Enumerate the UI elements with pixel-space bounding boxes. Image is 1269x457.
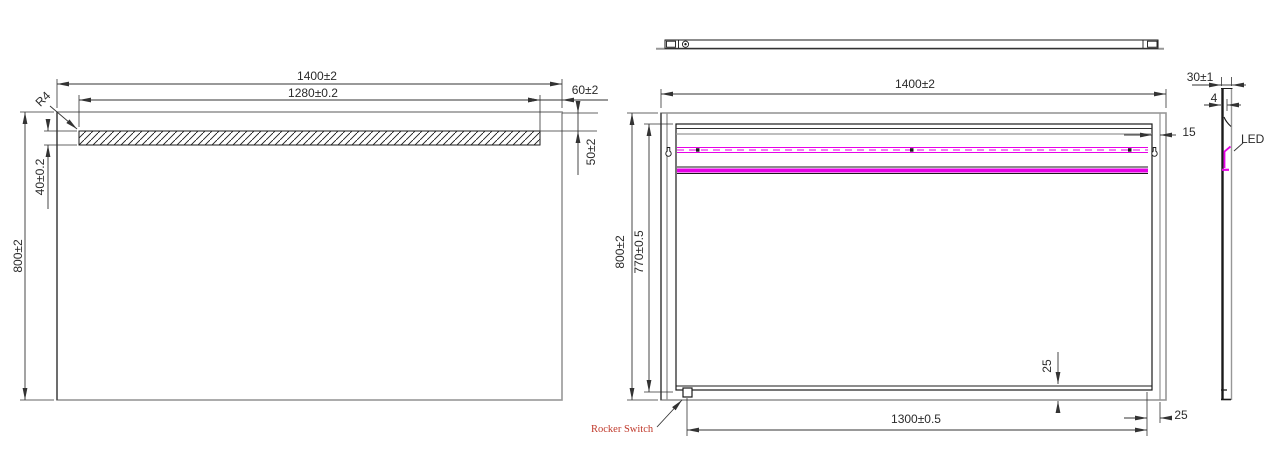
led-window-hatch [79, 131, 540, 145]
side-view [1221, 88, 1233, 400]
dim-front-height: 800±2 [12, 230, 24, 282]
dim-back-inner-height: 770±0.5 [633, 221, 645, 283]
top-view [656, 40, 1164, 49]
dim-front-width-outer: 1400±2 [282, 70, 352, 82]
dim-back-right-gap: 25 [1168, 409, 1194, 421]
rocker-switch-label: Rocker Switch [591, 424, 666, 436]
back-view-dimensions [627, 89, 1176, 436]
back-inner-frame [676, 124, 1152, 390]
front-view-dimensions [20, 79, 608, 400]
back-view [661, 113, 1166, 400]
dim-side-glass: 4 [1207, 92, 1221, 104]
front-view [57, 112, 562, 400]
keyhole-hanger-right-icon [1152, 148, 1157, 157]
led-strip-top [677, 148, 1148, 153]
rocker-switch-leader-line [657, 400, 682, 427]
led-label: LED [1241, 133, 1269, 145]
dim-front-top-offset: 50±2 [585, 131, 597, 173]
dim-back-switch-span: 1300±0.5 [876, 413, 956, 425]
side-view-led-strip [1225, 147, 1231, 169]
led-strip-lower [677, 167, 1148, 174]
dim-front-width-led: 1280±0.2 [273, 87, 353, 99]
top-view-body [665, 40, 1158, 48]
dim-back-bottom-gap: 25 [1041, 353, 1053, 379]
mirror-back-outline [661, 113, 1166, 400]
dim-side-depth: 30±1 [1178, 71, 1222, 83]
mirror-front-outline [57, 112, 562, 400]
side-view-dimensions [1192, 77, 1246, 151]
dim-back-height: 800±2 [614, 226, 626, 278]
dim-back-width: 1400±2 [880, 78, 950, 90]
r4-leader-line [50, 106, 77, 129]
dim-front-right-offset: 60±2 [563, 84, 607, 96]
dim-front-led-height: 40±0.2 [34, 146, 46, 208]
dim-back-edge-gap: 15 [1178, 126, 1200, 138]
technical-drawing-sheet: 1400±2 1280±0.2 60±2 R4 40±0.2 800±2 50±… [0, 0, 1269, 457]
rocker-switch-icon [683, 388, 692, 397]
